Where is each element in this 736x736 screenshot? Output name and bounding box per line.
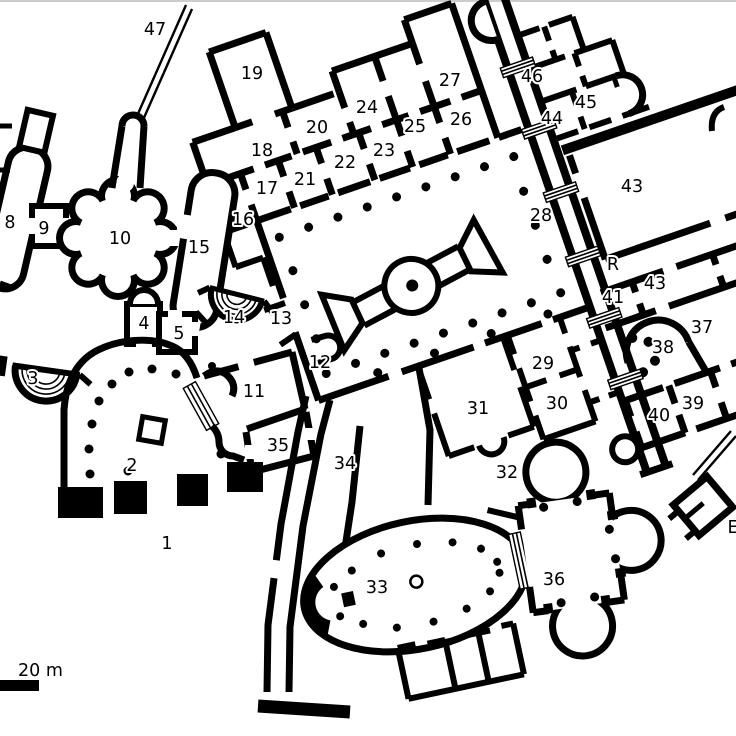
room-label-32-43: 32 [496, 463, 518, 483]
room-label-8-21: 8 [4, 213, 15, 233]
room-label-18-11: 18 [251, 141, 273, 161]
room-label-36-45: 36 [543, 570, 565, 590]
room-label-15-24: 15 [188, 238, 210, 258]
room-label-34-34: 34 [334, 454, 356, 474]
room-label-30-41: 30 [546, 394, 568, 414]
room-label-14-25: 14 [223, 308, 245, 328]
room-label-35-33: 35 [267, 436, 289, 456]
room-label-31-42: 31 [467, 399, 489, 419]
room-label-21-13: 21 [294, 170, 316, 190]
room-label-2-31: 2 [126, 456, 137, 476]
scale-bar-rect [0, 680, 39, 691]
room-label-40-39: 40 [648, 406, 670, 426]
oval-center-basin [409, 575, 423, 589]
room-label-E-46: E [727, 518, 736, 538]
room-label-44-5: 44 [541, 109, 563, 129]
site-plan-svg: 20 m 47192746454426252420231822211716432… [0, 0, 736, 736]
room-label-4-28: 4 [138, 314, 149, 334]
room-label-41-20: 41 [602, 288, 624, 308]
room-label-47-0: 47 [144, 20, 166, 40]
room-label-12-27: 12 [309, 353, 331, 373]
scale-bar-label: 20 m [18, 661, 63, 681]
room-label-37-36: 37 [691, 318, 713, 338]
courtyard-fountain [139, 417, 166, 444]
room-label-1-35: 1 [161, 534, 172, 554]
room-label-26-6: 26 [450, 110, 472, 130]
room-label-43-19: 43 [644, 274, 666, 294]
room-label-22-12: 22 [334, 153, 356, 173]
room-label-17-14: 17 [256, 179, 278, 199]
room-label-25-7: 25 [404, 117, 426, 137]
room-label-3-30: 3 [27, 369, 38, 389]
room-label-28-17: 28 [530, 206, 552, 226]
room-label-38-37: 38 [652, 338, 674, 358]
room-label-10-23: 10 [109, 229, 131, 249]
room-label-5-29: 5 [173, 324, 184, 344]
room-label-39-38: 39 [682, 394, 704, 414]
room-label-33-44: 33 [366, 578, 388, 598]
room-label-9-22: 9 [38, 219, 49, 239]
room-label-23-10: 23 [373, 141, 395, 161]
site-plan-page: 20 m 47192746454426252420231822211716432… [0, 0, 736, 736]
room-label-20-9: 20 [306, 118, 328, 138]
room-label-11-32: 11 [243, 382, 265, 402]
room-label-43-16: 43 [621, 177, 643, 197]
room-label-46-3: 46 [521, 67, 543, 87]
room-label-16-15: 16 [232, 210, 254, 230]
room-label-29-40: 29 [532, 354, 554, 374]
room-label-45-4: 45 [575, 93, 597, 113]
room-label-19-1: 19 [241, 64, 263, 84]
room-label-R-18: R [607, 255, 619, 275]
room-label-24-8: 24 [356, 98, 378, 118]
room-label-27-2: 27 [439, 71, 461, 91]
room-label-13-26: 13 [270, 309, 292, 329]
